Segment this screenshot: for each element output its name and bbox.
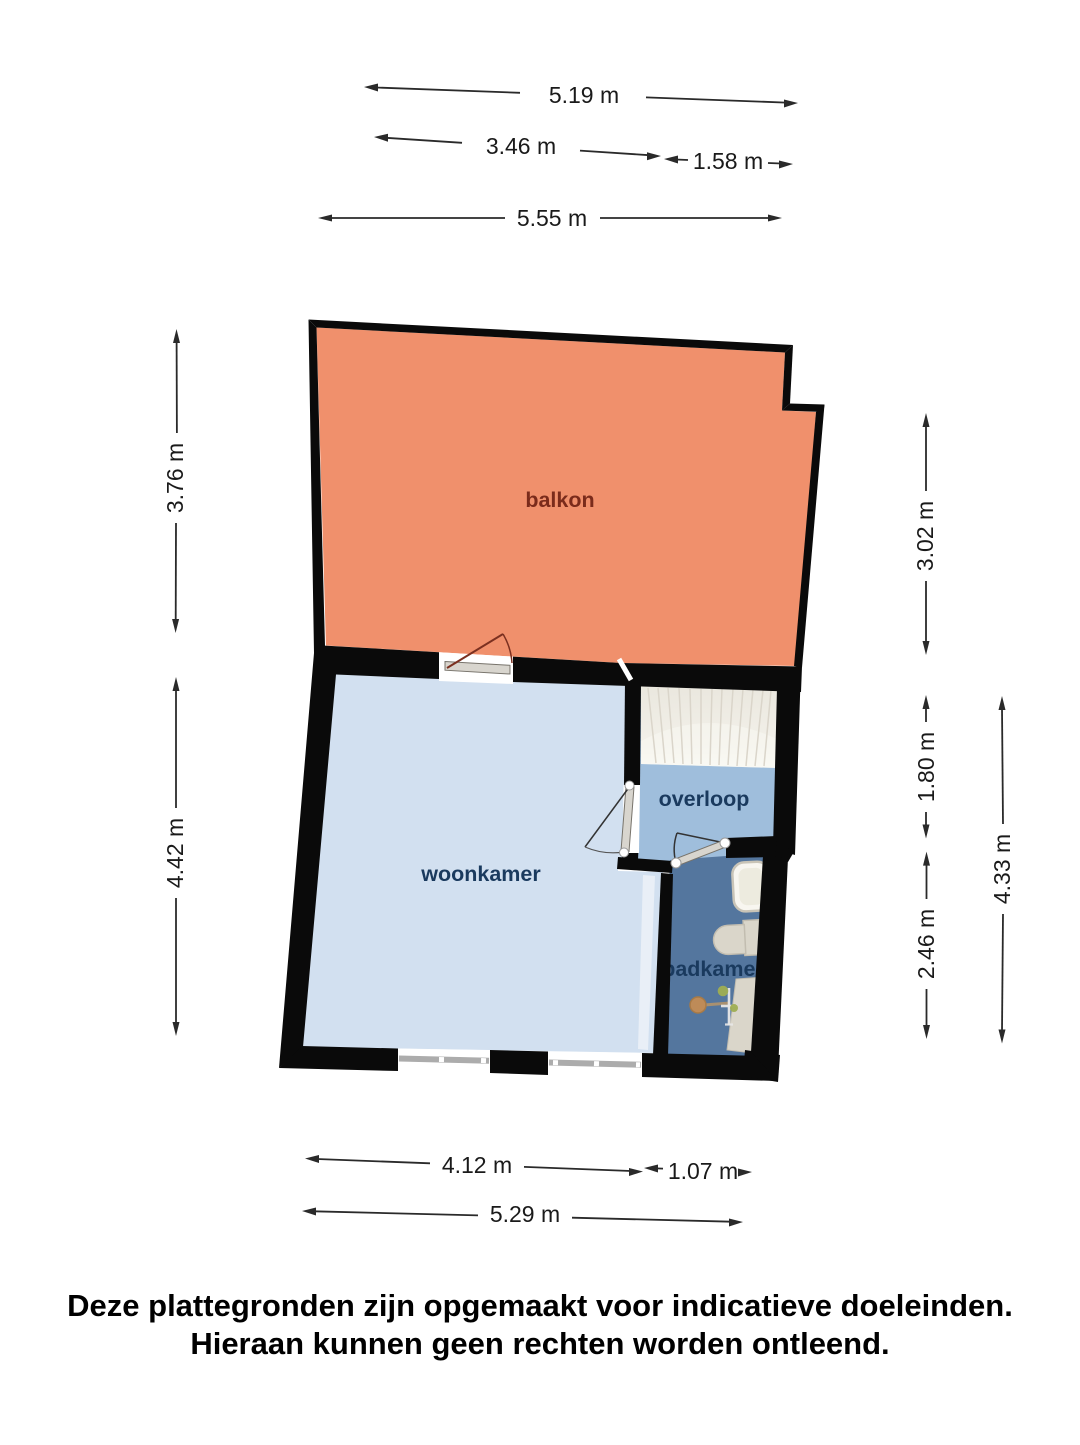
svg-text:4.42 m: 4.42 m	[162, 818, 188, 888]
svg-text:badkamer: badkamer	[662, 957, 764, 981]
svg-text:woonkamer: woonkamer	[420, 862, 541, 886]
svg-text:4.12 m: 4.12 m	[442, 1152, 512, 1178]
svg-text:overloop: overloop	[659, 787, 750, 811]
svg-text:5.55 m: 5.55 m	[517, 205, 587, 231]
svg-text:4.33 m: 4.33 m	[989, 834, 1015, 904]
svg-text:5.29 m: 5.29 m	[490, 1201, 560, 1227]
svg-text:3.46 m: 3.46 m	[486, 133, 556, 159]
svg-text:3.76 m: 3.76 m	[162, 443, 188, 513]
svg-text:2.46 m: 2.46 m	[913, 909, 939, 979]
svg-text:3.02 m: 3.02 m	[912, 501, 938, 571]
svg-text:Hieraan kunnen geen rechten wo: Hieraan kunnen geen rechten worden ontle…	[190, 1326, 889, 1361]
svg-text:5.19 m: 5.19 m	[549, 82, 619, 108]
svg-text:1.80 m: 1.80 m	[913, 732, 939, 802]
svg-text:Deze plattegronden zijn opgema: Deze plattegronden zijn opgemaakt voor i…	[67, 1288, 1013, 1323]
svg-text:balkon: balkon	[525, 488, 594, 512]
svg-text:1.58 m: 1.58 m	[693, 148, 763, 174]
svg-text:1.07 m: 1.07 m	[668, 1158, 738, 1184]
